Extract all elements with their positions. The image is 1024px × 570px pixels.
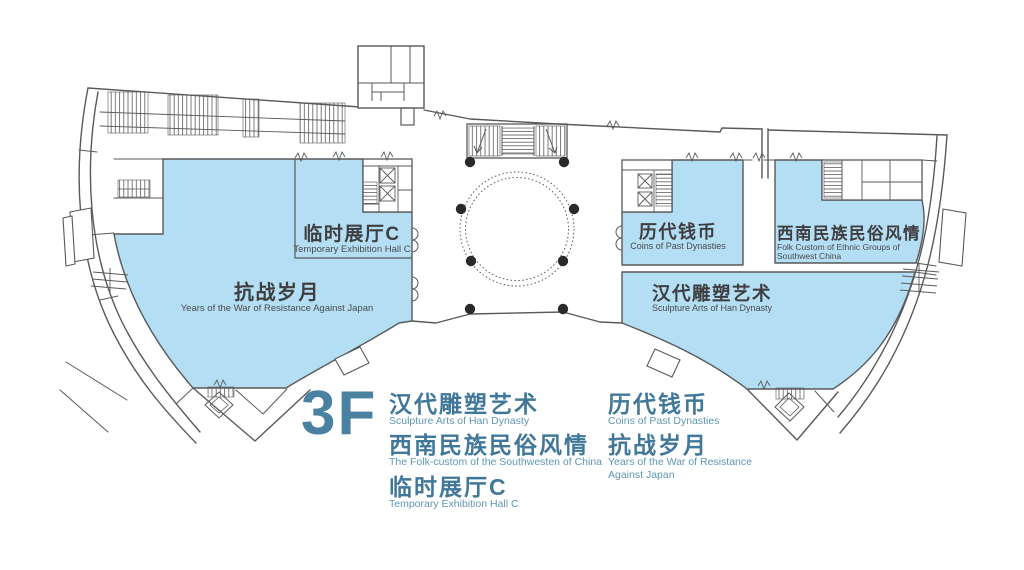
legend-coins-en: Coins of Past Dynasties [608,415,719,427]
label-temporary-hall-c-en: Temporary Exhibition Hall C [293,244,410,255]
exhibition-areas [114,159,924,389]
stairs-icon [656,174,672,206]
floor-indicator: 3F [301,379,377,448]
label-han-sculpture-en: Sculpture Arts of Han Dynasty [652,303,773,313]
stairs-icon [824,162,842,198]
label-war-years-zh: 抗战岁月 [234,280,320,304]
coins-utility-block [622,160,672,212]
legend: 3F 汉代雕塑艺术 Sculpture Arts of Han Dynasty … [301,379,752,510]
legend-temporary-hall-zh: 临时展厅C [389,474,508,500]
legend-war-years-en2: Against Japan [608,469,675,481]
floorplan-3f: 临时展厅C Temporary Exhibition Hall C 抗战岁月 Y… [0,0,1024,570]
central-rotunda [460,172,574,286]
inner-arc-kiosks [335,347,680,377]
top-utility-block [358,46,424,125]
left-utility-block [363,159,412,212]
folk-utility-block [822,160,922,200]
label-folk-custom-zh: 西南民族民俗风情 [777,223,921,243]
legend-folk-custom-zh: 西南民族民俗风情 [389,432,589,458]
legend-war-years-en1: Years of the War of Resistance [608,456,752,468]
outer-balcony-right [939,209,966,266]
stairs-icon [363,182,377,204]
label-temporary-hall-c-zh: 临时展厅C [303,222,400,245]
right-v-stairs [775,388,804,421]
central-escalator-block [467,124,567,158]
legend-coins-zh: 历代钱币 [608,391,708,417]
label-coins-zh: 历代钱币 [639,221,717,242]
legend-temporary-hall-en: Temporary Exhibition Hall C [389,498,519,510]
label-war-years-en: Years of the War of Resistance Against J… [181,303,374,314]
label-coins-en: Coins of Past Dynasties [630,241,726,251]
legend-war-years-zh: 抗战岁月 [608,432,708,458]
legend-han-sculpture-zh: 汉代雕塑艺术 [389,391,539,417]
outer-balcony-left [63,208,94,266]
louver-hatching [108,92,345,143]
museum-floorplan-page: 临时展厅C Temporary Exhibition Hall C 抗战岁月 Y… [0,0,1024,570]
label-folk-custom-en2: Southwest China [777,251,842,261]
legend-han-sculpture-en: Sculpture Arts of Han Dynasty [389,415,530,427]
rotunda-columns [456,157,579,314]
label-han-sculpture-zh: 汉代雕塑艺术 [652,283,772,304]
left-corridor-stair [118,180,150,197]
legend-folk-custom-en: The Folk-custom of the Southwesten of Ch… [389,456,602,468]
band-stair-left [91,268,128,293]
